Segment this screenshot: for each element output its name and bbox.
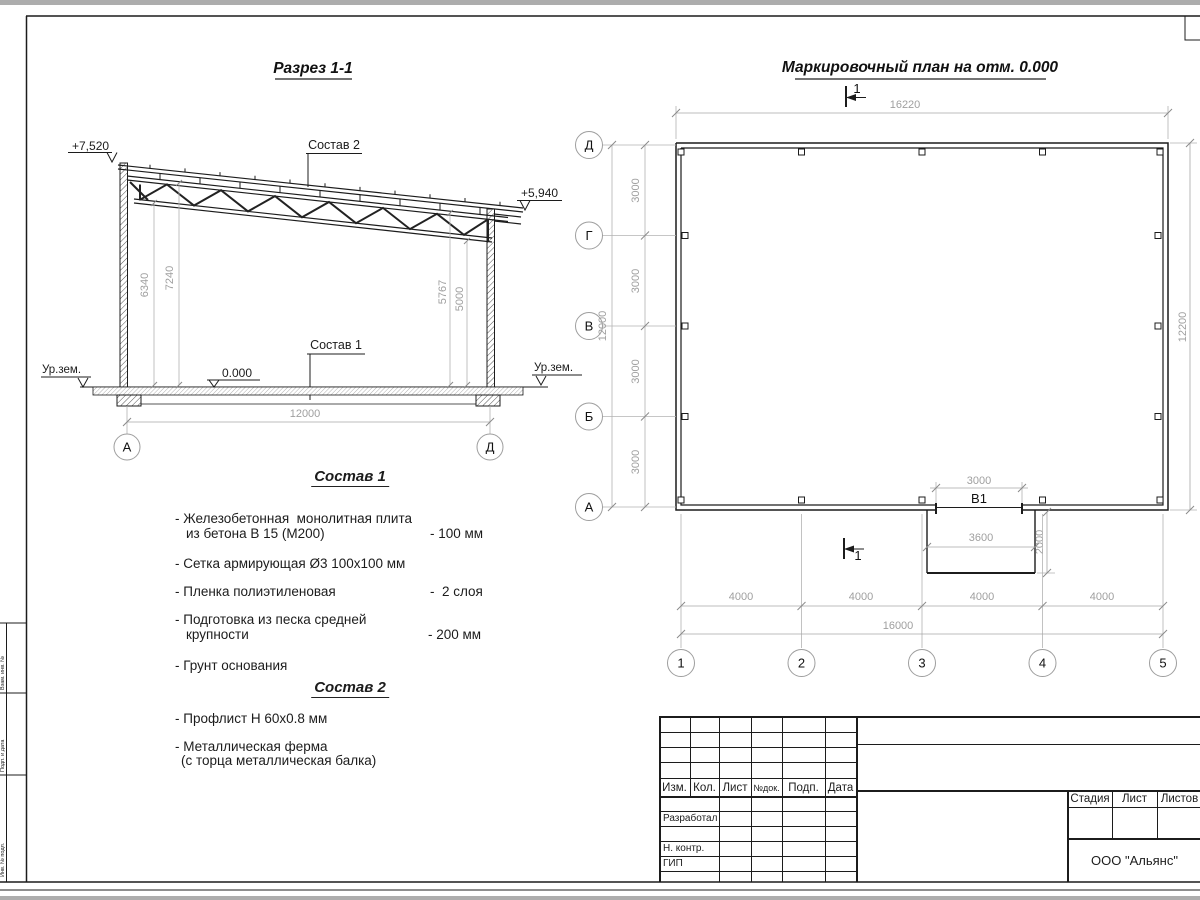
dim-3000-4: 3000 [630,450,642,474]
axis-row-a: А [585,500,594,515]
sostav1-item4-line2: крупности [186,627,249,642]
sostav1-item1-value: - 100 мм [430,526,483,541]
section-axis-a: А [123,440,132,455]
sostav2-item2-line2: (с торца металлическая балка) [181,753,376,768]
tb-col-list: Лист [719,779,751,796]
roof-purlins [160,174,480,215]
axis-row-b: Б [585,409,594,424]
plan-columns [678,149,1163,503]
tb-row-gip: ГИП [659,856,723,871]
elevation-right: +5,940 [517,186,562,210]
ground-right-label: Ур.зем. [534,362,573,374]
section-view: Разрез 1-1 [41,60,582,460]
zero-level-mark: 0.000 [207,366,260,387]
tb-sheet: Лист [1112,790,1157,807]
axis-row-g: Г [585,228,592,243]
plan-outer-wall [676,143,1168,510]
dim-7240: 7240 [164,266,176,290]
dim-4000-1: 4000 [729,591,753,603]
axis-col-5: 5 [1159,656,1166,671]
dim-3000-3: 3000 [630,359,642,383]
tb-col-data: Дата [825,779,856,796]
sostav1-item1-line1: - Железобетонная монолитная плита [175,511,412,526]
side-stamp-label-3: Инв. № подл. [0,843,6,877]
plan-bottom-dims: 4000 4000 4000 4000 16000 1 2 3 4 5 [668,514,1177,677]
dim-6340: 6340 [139,273,151,297]
opening-dim: 3000 В1 [930,475,1028,506]
dim-2000: 2000 [1034,530,1046,554]
opening-label-v1: В1 [971,491,987,506]
side-stamp-label-2: Подп. и дата [0,740,6,772]
footing-left [117,395,141,406]
dim-3000-1: 3000 [630,178,642,202]
cut-mark-top-label: 1 [853,81,860,96]
tb-stage: Стадия [1068,790,1112,807]
plan-title: Маркировочный план на отм. 0.000 [782,59,1059,76]
tb-row-ncontr: Н. контр. [659,841,723,856]
sostav1-item5: - Грунт основания [175,658,287,673]
drawing-linework: Разрез 1-1 [0,0,1200,900]
sostav1-item3: - Пленка полиэтиленовая [175,584,336,599]
tb-col-podp: Подп. [782,779,825,796]
tb-row-developed: Разработал [659,811,723,826]
tb-company: ООО "Альянс" [1067,838,1200,882]
zero-level-label: 0.000 [222,366,252,380]
plan-inner-wall [681,148,1163,505]
dim-4000-4: 4000 [1090,591,1114,603]
ground-left-label: Ур.зем. [42,364,81,376]
dim-3000-2: 3000 [630,269,642,293]
cut-mark-bottom: 1 [844,538,864,563]
sostav2-item1: - Профлист Н 60х0.8 мм [175,711,327,726]
footing-right [476,395,500,406]
dim-5767: 5767 [437,280,449,304]
side-stamp-label-1: Взам. инв. № [0,656,6,690]
section-span-dim: 12000 А Д [114,406,503,460]
sostav2-item2-line1: - Металлическая ферма [175,739,328,754]
dim-12000-section: 12000 [290,408,321,420]
dim-3600: 3600 [969,532,993,544]
tb-col-kol: Кол. [690,779,719,796]
section-title: Разрез 1-1 [273,60,353,77]
axis-col-4: 4 [1039,656,1046,671]
plan-top-dim: 16220 [672,99,1172,139]
axis-col-2: 2 [798,656,805,671]
sostav2-leader: Состав 2 [306,138,362,187]
sostav2-title: Состав 2 [311,679,389,698]
dim-16220: 16220 [890,99,921,111]
cut-mark-bottom-label: 1 [854,548,861,563]
tb-sheets: Листов [1157,790,1200,807]
sostav1-item4-line1: - Подготовка из песка средней [175,612,366,627]
section-axis-d: Д [486,440,495,455]
dim-4000-2: 4000 [849,591,873,603]
tb-col-ndok: №док. [751,779,782,796]
cut-mark-top: 1 [846,81,866,107]
drawing-sheet: Разрез 1-1 [0,0,1200,900]
dim-16000: 16000 [883,620,914,632]
ground-mark-right: Ур.зем. [532,362,582,385]
sostav1-item1-line2: из бетона В 15 (М200) [186,526,325,541]
dim-5000: 5000 [454,287,466,311]
dim-4000-3: 4000 [970,591,994,603]
section-height-dims: 6340 7240 5767 5000 [139,180,470,388]
plan-row-axes: 3000 3000 3000 3000 12000 Д Г В Б А [576,132,677,521]
dim-12200: 12200 [1177,312,1189,343]
elevation-left: +7,520 [68,139,117,162]
sostav1-item4-value: - 200 мм [428,627,481,642]
elev-right-label: +5,940 [521,186,558,200]
elev-left-label: +7,520 [72,139,109,153]
floor-slab [93,387,523,395]
sostav1-item3-value: - 2 слоя [430,584,483,599]
axis-col-3: 3 [918,656,925,671]
axis-row-d: Д [585,138,594,153]
axis-col-1: 1 [677,656,684,671]
edge-beam [494,214,521,224]
sheet-frame [0,0,1200,900]
tb-col-izm: Изм. [659,779,690,796]
sostav2-callout: Состав 2 [308,138,360,152]
ground-mark-left: Ур.зем. [41,364,91,387]
axis-row-v: В [585,319,594,334]
dim-3000-opening: 3000 [967,475,991,487]
sostav1-title: Состав 1 [311,468,389,487]
sostav1-item2: - Сетка армирующая Ø3 100х100 мм [175,556,405,571]
section-left-wall [120,163,128,387]
sostav1-callout: Состав 1 [310,338,362,352]
plan-right-dim: 12200 [1170,139,1197,514]
plan-view: Маркировочный план на отм. 0.000 1 1 [576,59,1198,677]
